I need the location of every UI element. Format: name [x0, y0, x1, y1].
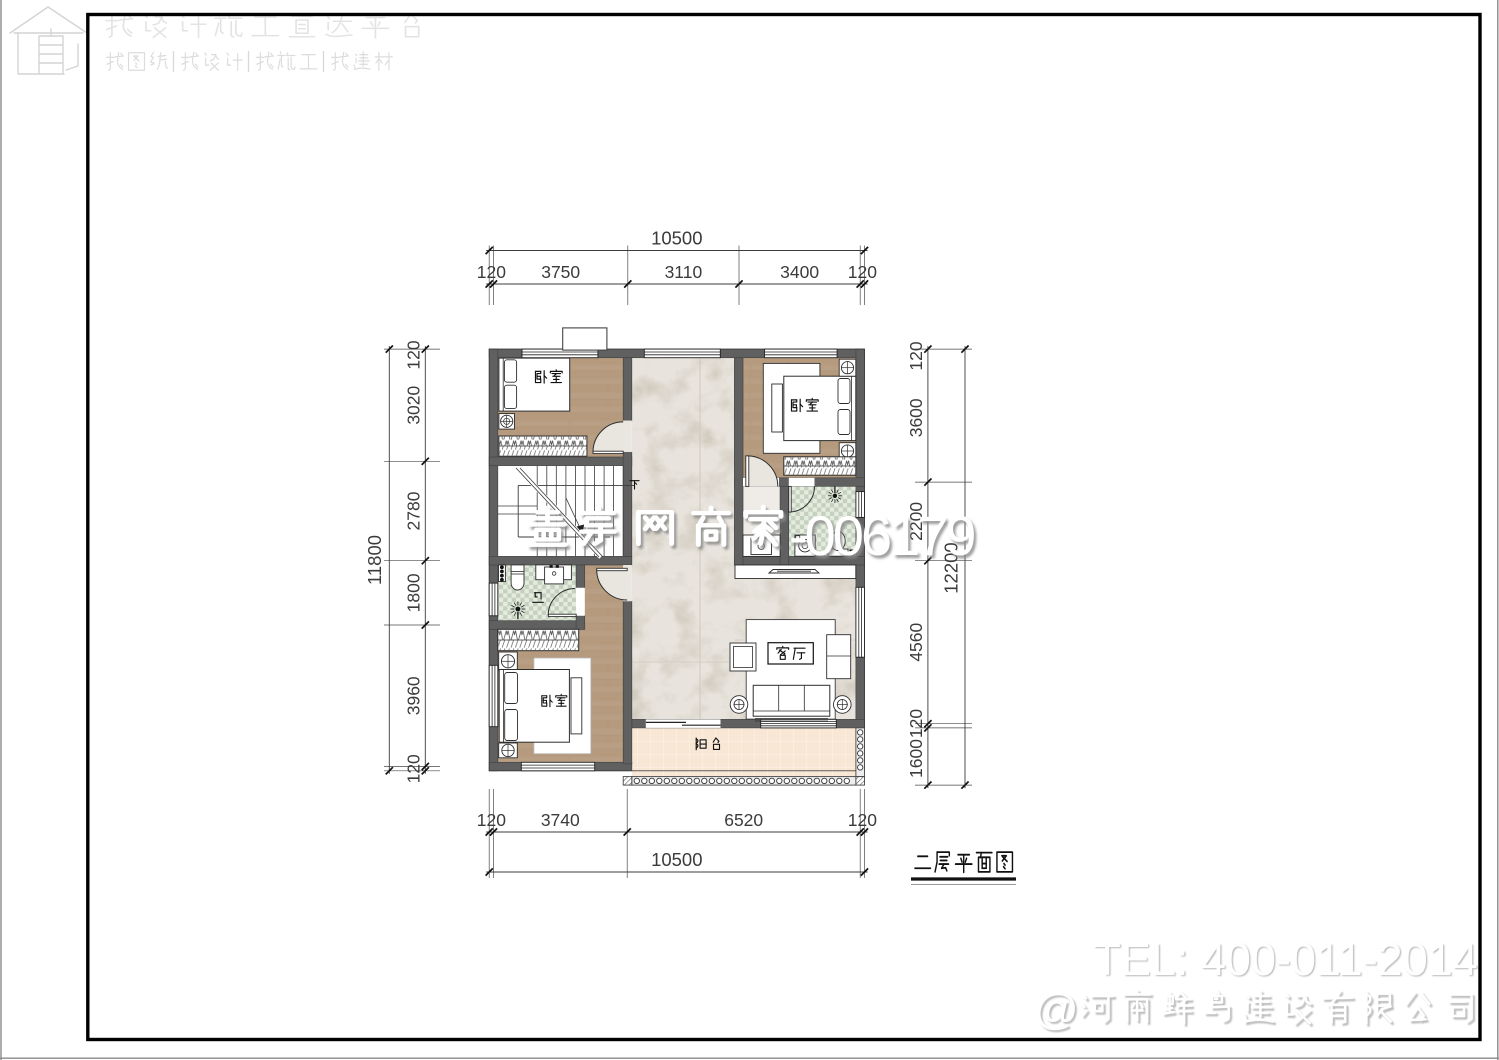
- svg-text:10500: 10500: [651, 228, 702, 249]
- svg-text:6520: 6520: [724, 810, 763, 830]
- svg-text:3020: 3020: [403, 385, 423, 424]
- svg-text:10500: 10500: [651, 849, 702, 870]
- svg-text:3750: 3750: [541, 262, 580, 282]
- svg-text:3110: 3110: [665, 262, 703, 282]
- svg-text:120: 120: [477, 262, 506, 282]
- svg-text:120: 120: [477, 810, 506, 830]
- svg-text:120: 120: [906, 341, 926, 370]
- svg-text:TEL: 400-011-2014: TEL: 400-011-2014: [1093, 934, 1477, 985]
- svg-text:1600: 1600: [906, 739, 926, 778]
- svg-text:120: 120: [848, 810, 877, 830]
- svg-text:3960: 3960: [403, 676, 423, 715]
- svg-text:120: 120: [848, 262, 877, 282]
- svg-text:4560: 4560: [906, 622, 926, 661]
- svg-text:3600: 3600: [906, 398, 926, 437]
- svg-text:-006179: -006179: [789, 504, 974, 567]
- svg-text:3400: 3400: [780, 262, 819, 282]
- svg-text:2780: 2780: [403, 491, 423, 530]
- svg-text:1800: 1800: [403, 573, 423, 612]
- svg-text:120: 120: [906, 709, 926, 738]
- svg-text:@: @: [1034, 985, 1079, 1034]
- svg-text:120: 120: [403, 340, 423, 369]
- svg-text:11800: 11800: [364, 535, 385, 585]
- svg-text:120: 120: [403, 754, 423, 783]
- svg-text:3740: 3740: [541, 810, 580, 830]
